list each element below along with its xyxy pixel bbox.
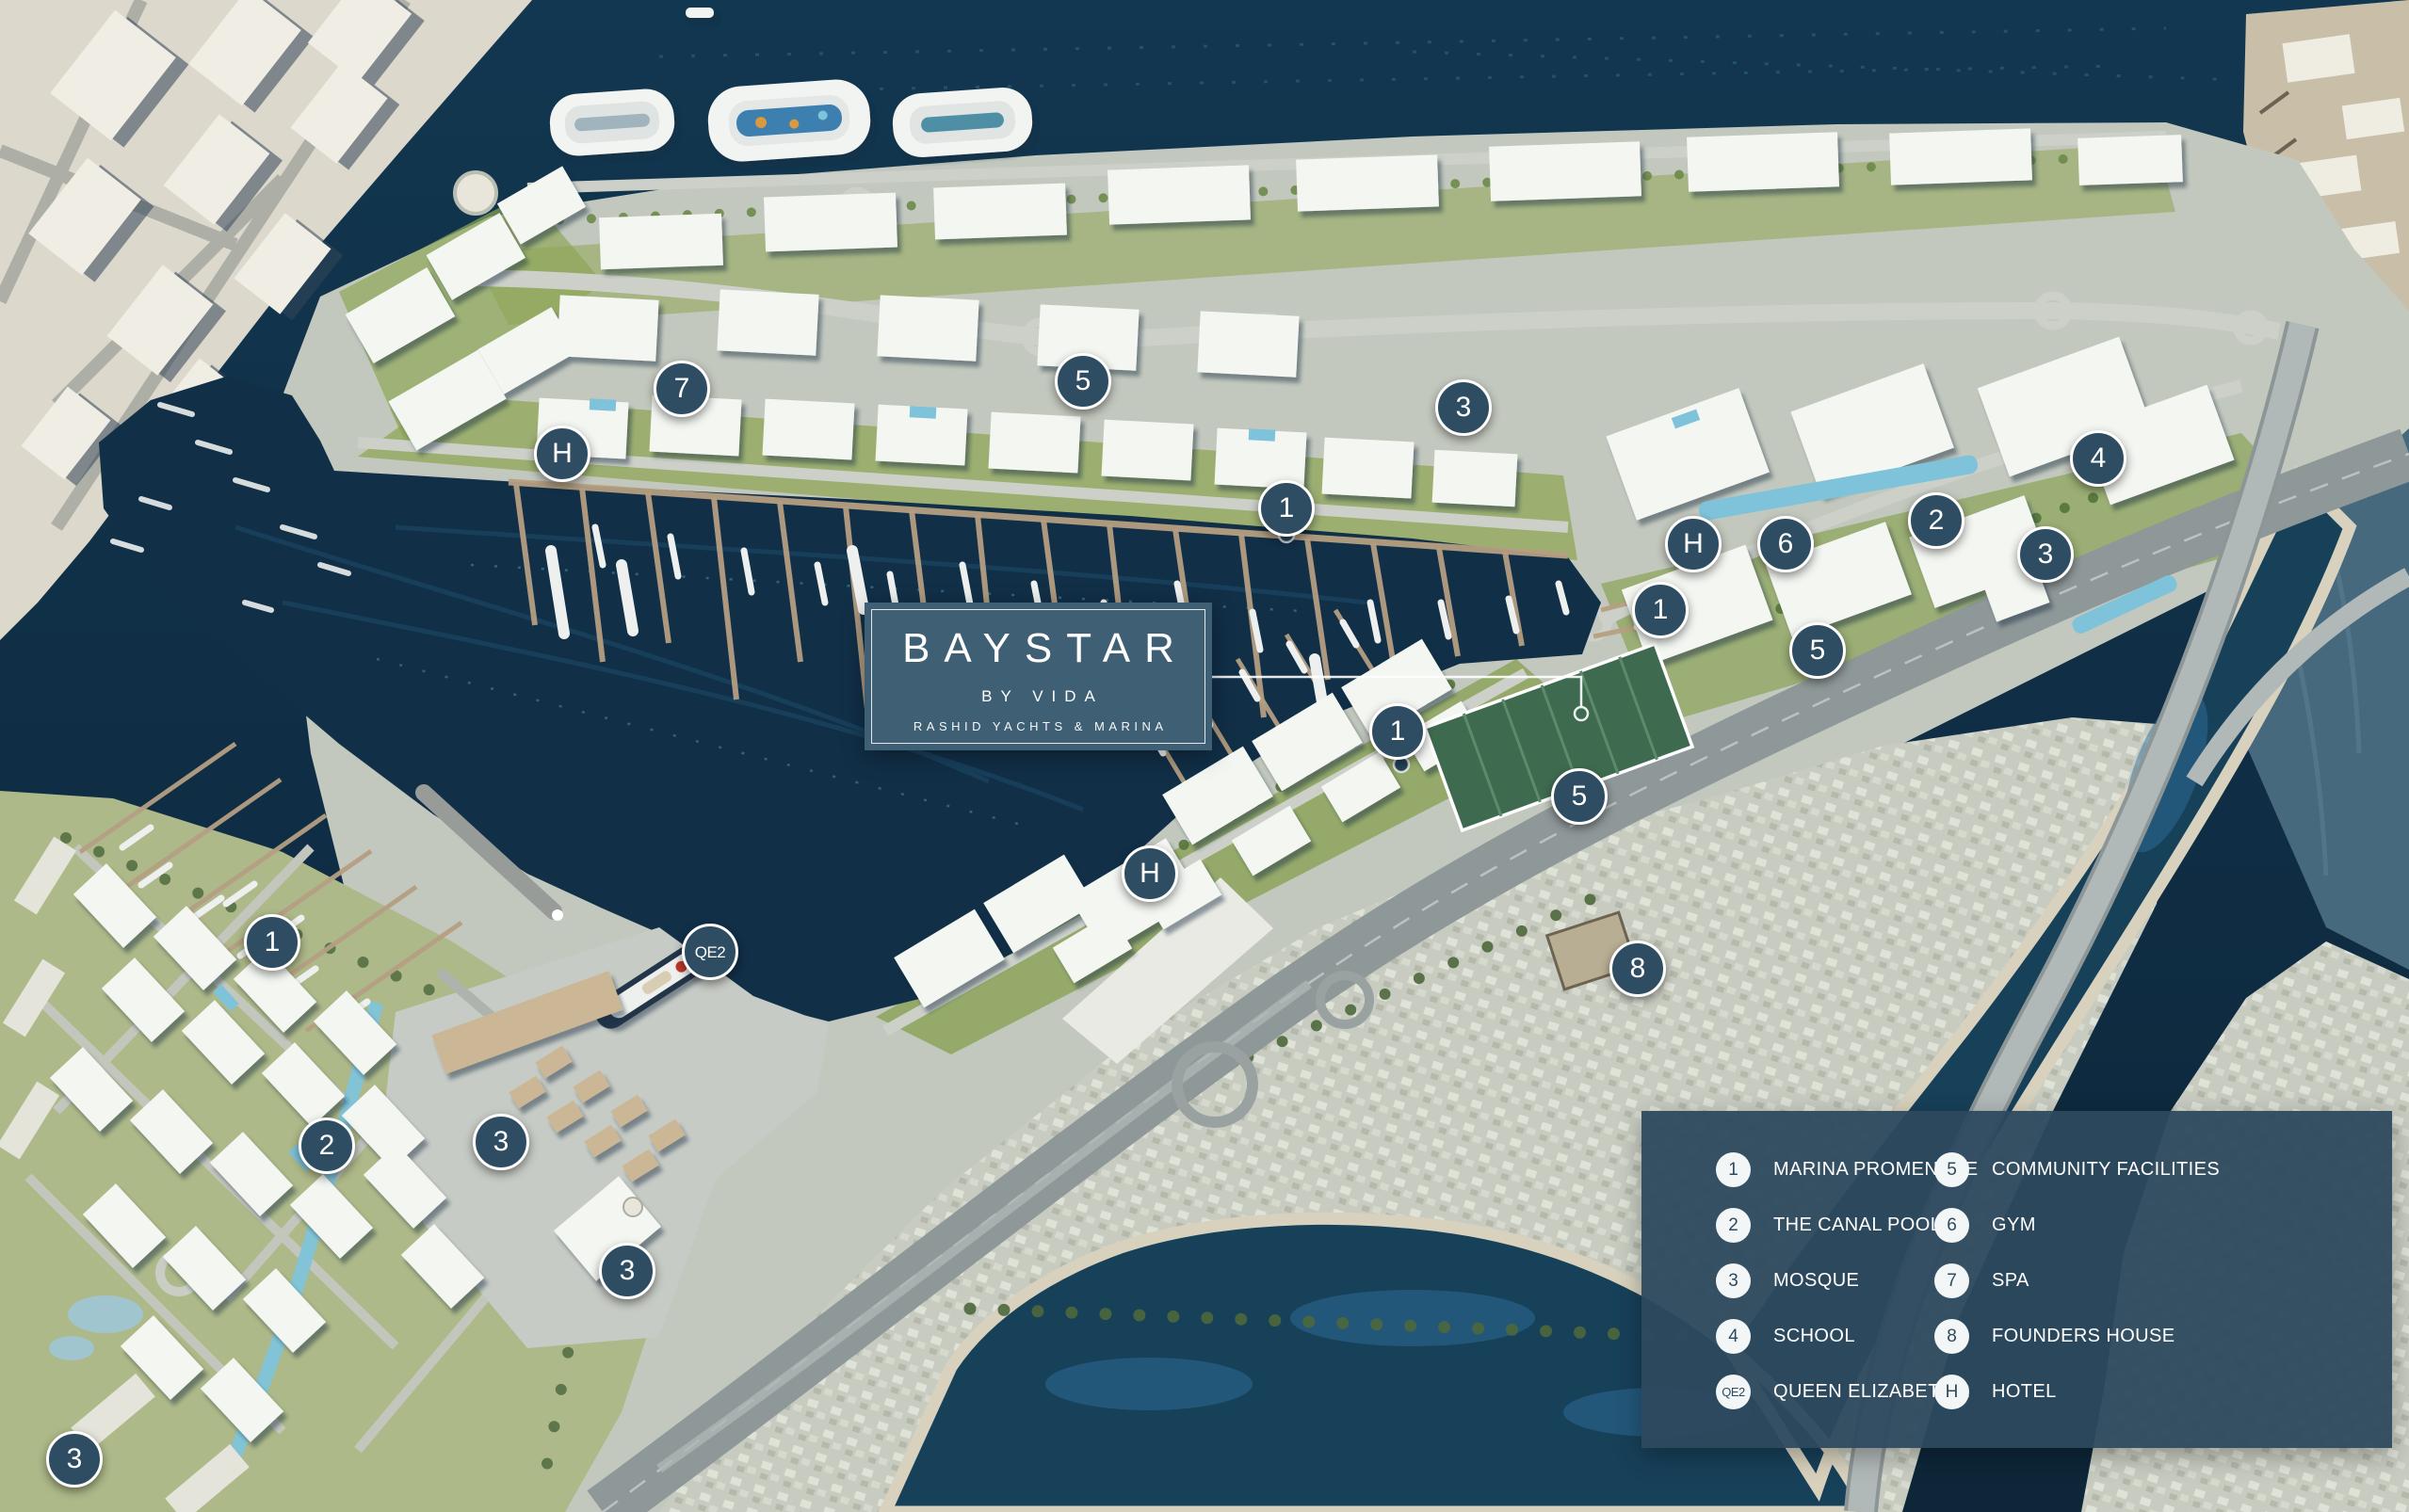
map-marker-5-13[interactable]: 5	[1551, 768, 1608, 825]
legend-item-founders-house: 8FOUNDERS HOUSE	[1934, 1309, 2220, 1364]
logo-tagline: RASHID YACHTS & MARINA	[865, 719, 1212, 733]
legend-key-qe2: QE2	[1716, 1375, 1751, 1409]
project-logo-card: BAYSTAR BY VIDA RASHID YACHTS & MARINA	[865, 603, 1212, 750]
masterplan-canvas: 7H531423H61515HQE2812333 BAYSTAR BY VIDA…	[0, 0, 2409, 1512]
map-marker-3-7[interactable]: 3	[2017, 526, 2074, 583]
legend-label: MOSQUE	[1773, 1270, 1859, 1292]
map-marker-5-2[interactable]: 5	[1055, 353, 1111, 410]
map-marker-h-14[interactable]: H	[1122, 845, 1178, 902]
map-marker-6-9[interactable]: 6	[1757, 516, 1814, 572]
legend-key-7: 7	[1934, 1263, 1969, 1298]
legend-key-2: 2	[1716, 1208, 1751, 1243]
map-marker-qe2-15[interactable]: QE2	[682, 924, 738, 980]
legend-item-gym: 6GYM	[1934, 1198, 2220, 1253]
legend-item-spa: 7SPA	[1934, 1253, 2220, 1309]
map-marker-4-5[interactable]: 4	[2070, 430, 2126, 487]
map-marker-h-8[interactable]: H	[1665, 516, 1722, 572]
legend-label: SCHOOL	[1773, 1326, 1855, 1347]
map-marker-1-12[interactable]: 1	[1369, 703, 1426, 760]
legend-label: FOUNDERS HOUSE	[1992, 1326, 2175, 1347]
logo-title: BAYSTAR	[865, 625, 1212, 672]
legend-key-8: 8	[1934, 1319, 1969, 1354]
map-marker-3-3[interactable]: 3	[1435, 379, 1492, 436]
map-marker-3-19[interactable]: 3	[473, 1114, 529, 1170]
legend-key-3: 3	[1716, 1263, 1751, 1298]
legend-label: HOTEL	[1992, 1381, 2057, 1403]
legend-label: THE CANAL POOL	[1773, 1214, 1941, 1236]
legend-key-5: 5	[1934, 1152, 1969, 1187]
map-marker-5-11[interactable]: 5	[1789, 622, 1846, 679]
legend-label: GYM	[1992, 1214, 2036, 1236]
legend-item-community-facilities: 5COMMUNITY FACILITIES	[1934, 1142, 2220, 1198]
legend-label: COMMUNITY FACILITIES	[1992, 1159, 2220, 1181]
legend-column-1: 5COMMUNITY FACILITIES6GYM7SPA8FOUNDERS H…	[1934, 1142, 2220, 1420]
map-marker-3-20[interactable]: 3	[599, 1243, 655, 1299]
map-marker-1-4[interactable]: 1	[1258, 480, 1315, 537]
map-marker-1-10[interactable]: 1	[1632, 582, 1689, 638]
legend-key-1: 1	[1716, 1152, 1751, 1187]
map-legend: 1MARINA PROMENADE2THE CANAL POOL3MOSQUE4…	[1641, 1111, 2392, 1448]
logo-subtitle: BY VIDA	[865, 687, 1212, 706]
legend-label: SPA	[1992, 1270, 2029, 1292]
map-marker-1-17[interactable]: 1	[244, 914, 300, 971]
legend-key-4: 4	[1716, 1319, 1751, 1354]
legend-item-hotel: HHOTEL	[1934, 1364, 2220, 1420]
map-marker-3-21[interactable]: 3	[46, 1431, 103, 1488]
legend-key-6: 6	[1934, 1208, 1969, 1243]
map-marker-h-1[interactable]: H	[534, 426, 590, 482]
legend-key-h: H	[1934, 1375, 1969, 1409]
map-marker-8-16[interactable]: 8	[1609, 941, 1666, 997]
map-marker-2-6[interactable]: 2	[1908, 492, 1964, 549]
map-marker-7-0[interactable]: 7	[654, 361, 710, 417]
map-marker-2-18[interactable]: 2	[299, 1118, 355, 1174]
